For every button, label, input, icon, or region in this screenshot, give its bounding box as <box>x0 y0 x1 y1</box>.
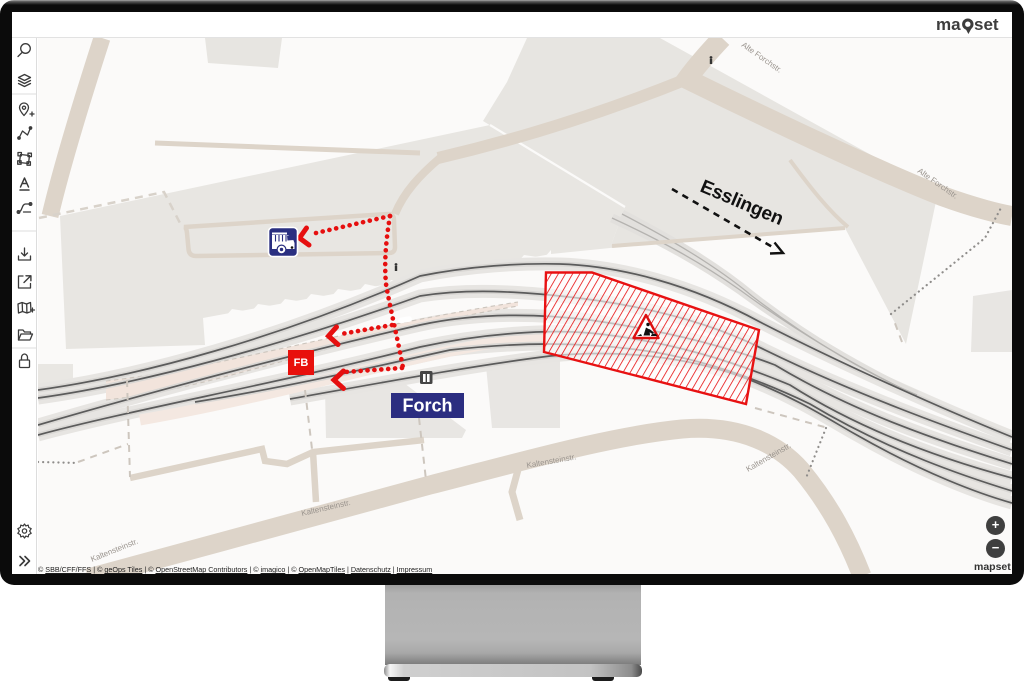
svg-text:mapset: mapset <box>974 561 1011 573</box>
svg-text:Forch: Forch <box>402 396 452 416</box>
svg-text:set: set <box>974 15 999 34</box>
svg-text:FB: FB <box>294 357 309 369</box>
svg-text:ma: ma <box>936 15 961 34</box>
